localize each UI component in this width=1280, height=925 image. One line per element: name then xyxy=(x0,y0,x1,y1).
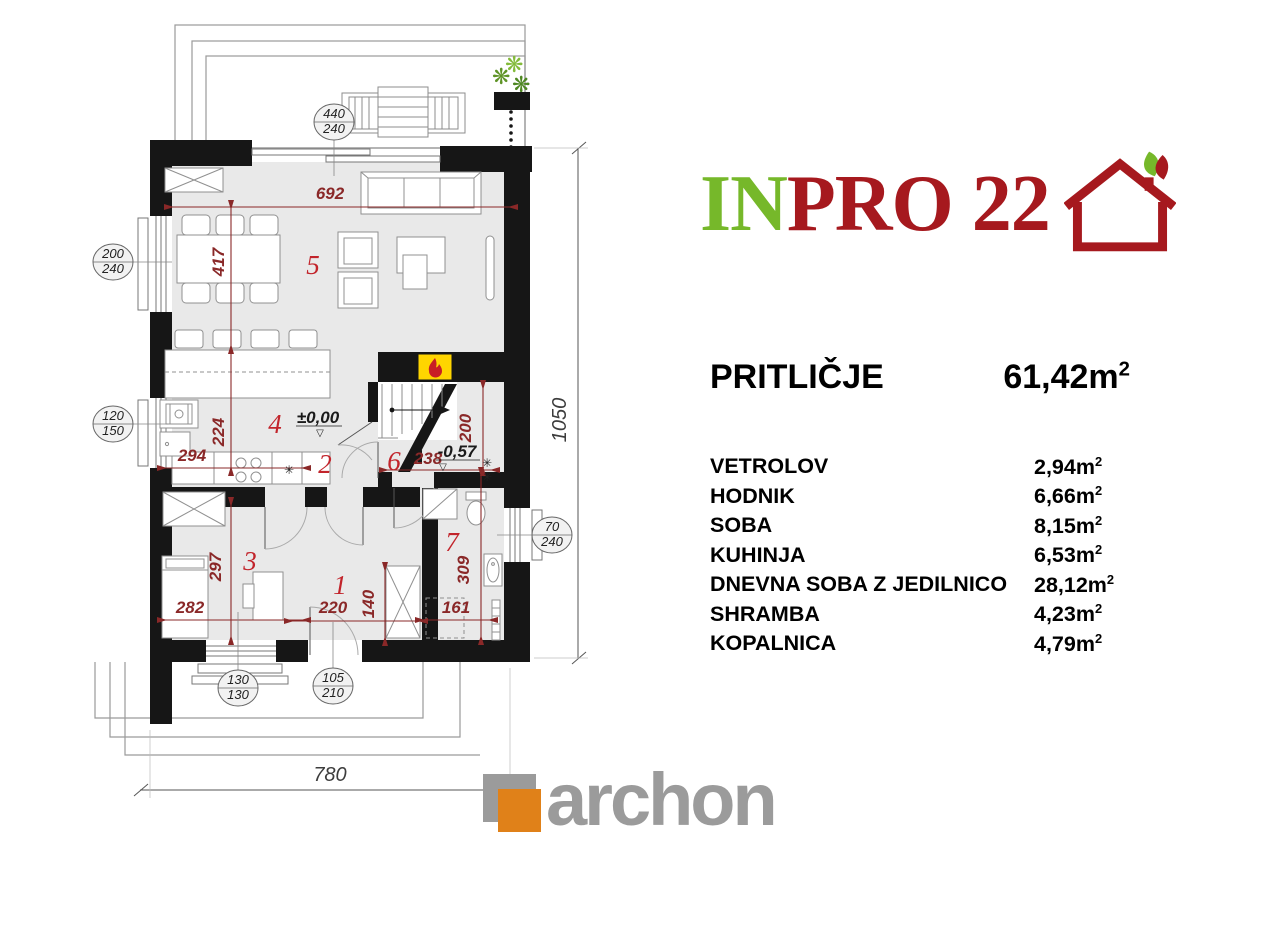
inpro-logo-text: INPRO 22 xyxy=(700,164,1050,244)
cabinet xyxy=(165,168,223,192)
armchair xyxy=(338,272,378,308)
sofa xyxy=(361,172,481,214)
room-name: DNEVNA SOBA Z JEDILNICO xyxy=(710,572,1034,597)
dim-overall-width: 780 xyxy=(313,764,346,786)
legend-row: VETROLOV2,94m2 xyxy=(710,452,1130,482)
bed xyxy=(162,556,208,638)
legend-row: HODNIK6,66m2 xyxy=(710,482,1130,512)
room-name: SOBA xyxy=(710,513,1034,538)
room-number-1: 1 xyxy=(333,570,347,600)
room-number-3: 3 xyxy=(242,546,257,576)
svg-text:▽: ▽ xyxy=(316,428,324,439)
svg-text:440: 440 xyxy=(323,106,345,121)
svg-text:▽: ▽ xyxy=(439,462,447,473)
dim-282: 282 xyxy=(175,598,205,617)
room-area: 8,15m2 xyxy=(1034,513,1130,539)
archon-logo-orange-square xyxy=(498,789,541,832)
page: ❋ ❋ ❋ xyxy=(0,0,1280,925)
room-name: VETROLOV xyxy=(710,454,1034,479)
plan-title-row: PRITLIČJE 61,42m2 xyxy=(710,358,1130,397)
legend-row: DNEVNA SOBA Z JEDILNICO28,12m2 xyxy=(710,570,1130,600)
armchair xyxy=(338,232,378,268)
toilet xyxy=(466,492,486,525)
svg-text:240: 240 xyxy=(322,121,345,136)
shower xyxy=(423,489,457,519)
dim-161: 161 xyxy=(442,598,470,617)
room-area: 4,79m2 xyxy=(1034,631,1130,657)
svg-text:200: 200 xyxy=(101,246,124,261)
archon-logo-text: archon xyxy=(546,763,775,837)
vent-icon: ✳ xyxy=(482,470,492,484)
total-area: 61,42m2 xyxy=(1003,358,1130,397)
room-legend: VETROLOV2,94m2 HODNIK6,66m2 SOBA8,15m2 K… xyxy=(710,452,1130,659)
legend-row: KUHINJA6,53m2 xyxy=(710,541,1130,571)
vent-icon: ✳ xyxy=(482,456,492,470)
level-cellar: -0,57 xyxy=(438,442,478,461)
room-area: 6,53m2 xyxy=(1034,542,1130,568)
dim-220: 220 xyxy=(318,598,348,617)
dim-200: 200 xyxy=(456,413,475,443)
room-name: SHRAMBA xyxy=(710,602,1034,627)
legend-row: KOPALNICA4,79m2 xyxy=(710,629,1130,659)
room-area: 28,12m2 xyxy=(1034,572,1130,598)
opening-200-240: 200 240 xyxy=(93,244,172,280)
room-number-5: 5 xyxy=(306,250,320,280)
dim-417: 417 xyxy=(209,246,228,277)
svg-text:70: 70 xyxy=(545,519,560,534)
svg-text:130: 130 xyxy=(227,672,249,687)
wardrobe xyxy=(163,492,225,526)
room-name: HODNIK xyxy=(710,484,1034,509)
dim-692: 692 xyxy=(316,184,345,203)
dim-294: 294 xyxy=(177,446,207,465)
svg-text:150: 150 xyxy=(102,423,124,438)
room-area: 4,23m2 xyxy=(1034,601,1130,627)
wardrobe xyxy=(386,566,420,638)
room-name: KUHINJA xyxy=(710,543,1034,568)
dim-309: 309 xyxy=(454,555,473,584)
svg-text:130: 130 xyxy=(227,687,249,702)
room-number-4: 4 xyxy=(268,409,282,439)
opening-70-240: 70 240 xyxy=(497,517,572,553)
dotted-line xyxy=(509,110,513,149)
room-area: 2,94m2 xyxy=(1034,454,1130,480)
room-area: 6,66m2 xyxy=(1034,483,1130,509)
room-number-6: 6 xyxy=(387,446,401,476)
logo-text-green: IN xyxy=(700,160,787,248)
dim-224: 224 xyxy=(209,417,228,447)
level-ground: ±0,00 xyxy=(297,408,340,427)
inpro-logo: INPRO 22 xyxy=(700,164,1176,254)
legend-row: SHRAMBA4,23m2 xyxy=(710,600,1130,630)
terrace-furniture xyxy=(342,87,465,137)
vent-icon: ✳ xyxy=(284,463,294,477)
room-number-2: 2 xyxy=(318,449,332,479)
dim-overall-height: 1050 xyxy=(549,398,571,443)
dim-297: 297 xyxy=(206,551,225,582)
svg-text:240: 240 xyxy=(540,534,563,549)
tv-board xyxy=(486,236,494,300)
room-name: KOPALNICA xyxy=(710,631,1034,656)
washbasin xyxy=(484,554,502,586)
dining-table xyxy=(177,215,280,303)
fireplace-icon xyxy=(418,354,452,380)
svg-text:120: 120 xyxy=(102,408,124,423)
radiator xyxy=(492,600,500,640)
dim-140: 140 xyxy=(359,589,378,618)
house-icon xyxy=(1064,150,1176,254)
page-title: PRITLIČJE xyxy=(710,358,884,397)
logo-text-red: PRO 22 xyxy=(787,160,1050,248)
svg-text:210: 210 xyxy=(321,685,344,700)
svg-text:240: 240 xyxy=(101,261,124,276)
svg-text:105: 105 xyxy=(322,670,344,685)
legend-row: SOBA8,15m2 xyxy=(710,511,1130,541)
opening-120-150: 120 150 xyxy=(93,406,168,442)
room-number-7: 7 xyxy=(445,527,460,557)
pillar xyxy=(494,92,530,110)
